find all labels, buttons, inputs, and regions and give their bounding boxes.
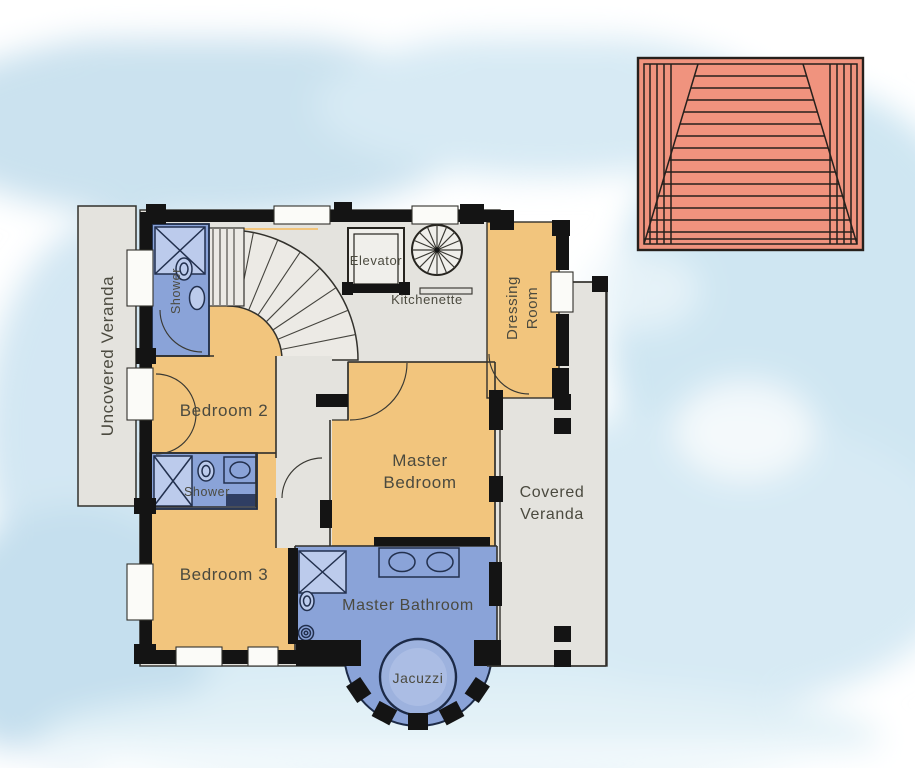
label-kitchenette: Kitchenette [391, 292, 463, 307]
window-icon [274, 206, 330, 224]
label-covered-line1: Covered [520, 484, 585, 501]
label-master-line1: Master [392, 451, 448, 470]
label-jacuzzi: Jacuzzi [393, 670, 444, 686]
column-icon [554, 626, 571, 642]
room-dressing [487, 222, 559, 398]
label-master-bathroom: Master Bathroom [342, 597, 474, 614]
window-icon [248, 647, 278, 666]
label-elevator: Elevator [350, 253, 403, 268]
window-icon [127, 250, 153, 306]
label-shower-mid: Shower [184, 485, 230, 499]
label-dressing-line2: Room [524, 287, 541, 329]
window-icon [551, 272, 573, 312]
label-covered-line2: Veranda [520, 506, 584, 523]
floor-plan-canvas: Uncovered Veranda Shower Elevator Kitche… [0, 0, 915, 768]
toilet-icon [300, 592, 314, 611]
floor-plan-page: Uncovered Veranda Shower Elevator Kitche… [0, 0, 915, 768]
label-bedroom-2: Bedroom 2 [180, 401, 269, 420]
label-master-line2: Bedroom [383, 473, 456, 492]
label-uncovered-veranda: Uncovered Veranda [98, 276, 117, 436]
window-icon [176, 647, 222, 666]
window-icon [127, 564, 153, 620]
toilet-icon [198, 461, 214, 481]
label-bedroom-3: Bedroom 3 [180, 565, 269, 584]
column-icon [554, 418, 571, 434]
window-icon [412, 206, 458, 224]
counter [226, 494, 256, 506]
label-shower-top: Shower [169, 268, 183, 314]
sink-icon [190, 287, 205, 310]
window-icon [127, 368, 153, 420]
column-icon [554, 650, 571, 667]
label-dressing-line1: Dressing [504, 276, 521, 340]
column-icon [554, 394, 571, 410]
hip-roof-icon [638, 58, 863, 250]
